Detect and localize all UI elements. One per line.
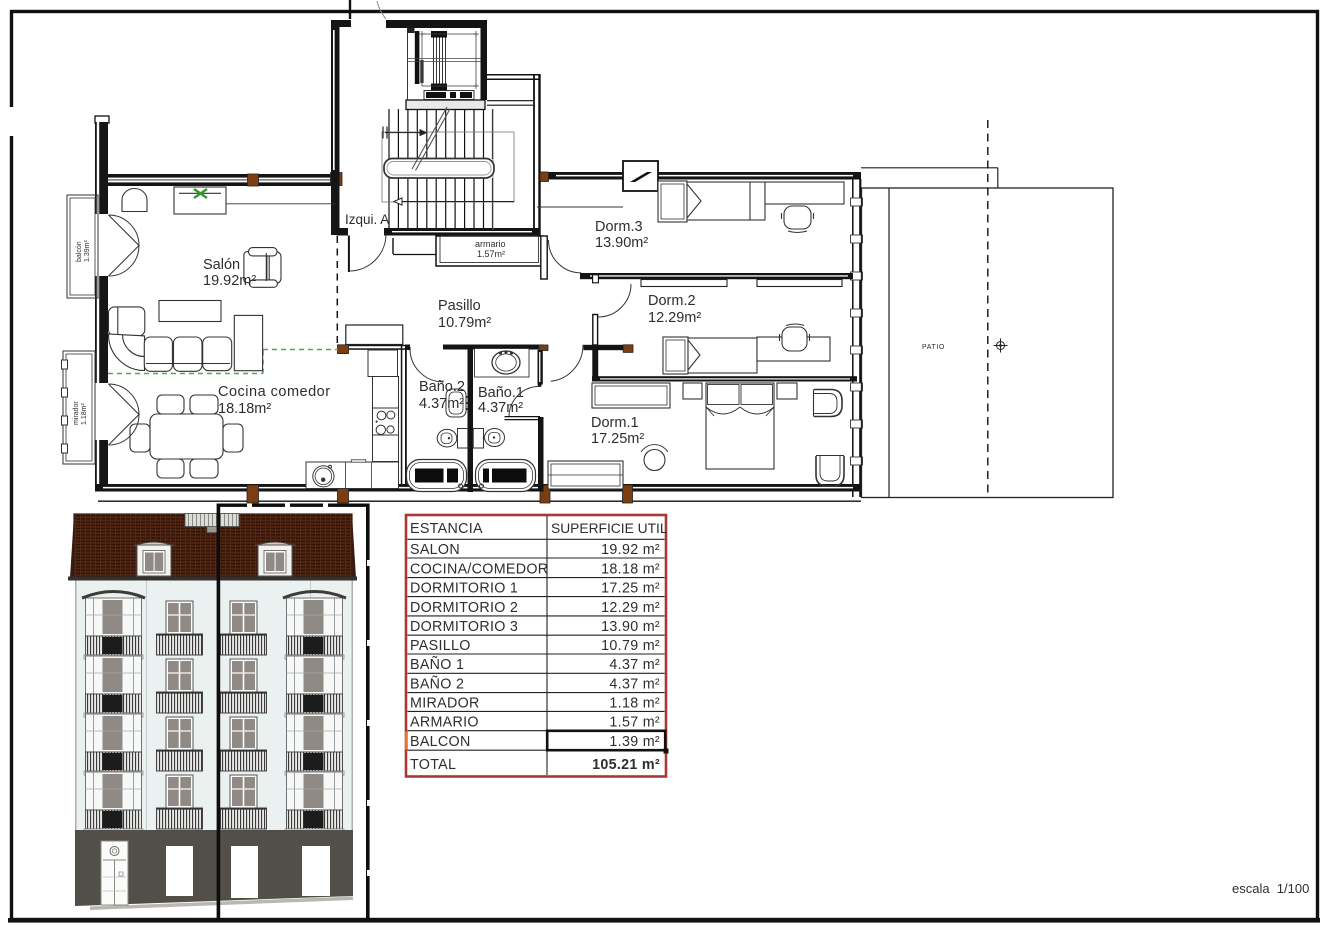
- svg-text:12.29m²: 12.29m²: [648, 310, 701, 326]
- svg-text:4.37m²: 4.37m²: [419, 396, 464, 412]
- svg-text:mirador: mirador: [73, 401, 80, 425]
- svg-text:Dorm.3: Dorm.3: [595, 219, 643, 235]
- svg-text:4.37 m²: 4.37 m²: [609, 677, 660, 693]
- svg-text:ARMARIO: ARMARIO: [410, 715, 479, 731]
- svg-text:17.25 m²: 17.25 m²: [601, 581, 660, 597]
- svg-text:10.79 m²: 10.79 m²: [601, 638, 660, 654]
- svg-text:MIRADOR: MIRADOR: [410, 696, 480, 712]
- svg-text:Izqui. A: Izqui. A: [345, 212, 389, 227]
- svg-text:10.79m²: 10.79m²: [438, 315, 491, 331]
- svg-text:balcón: balcón: [76, 241, 83, 262]
- svg-text:COCINA/COMEDOR: COCINA/COMEDOR: [410, 562, 548, 578]
- svg-text:105.21 m²: 105.21 m²: [592, 757, 660, 773]
- svg-text:17.25m²: 17.25m²: [591, 431, 644, 447]
- svg-text:18.18 m²: 18.18 m²: [601, 562, 660, 578]
- svg-text:ESTANCIA: ESTANCIA: [410, 521, 483, 537]
- svg-text:DORMITORIO 1: DORMITORIO 1: [410, 581, 518, 597]
- svg-text:1.57m²: 1.57m²: [477, 249, 505, 259]
- svg-text:1.39 m²: 1.39 m²: [609, 734, 660, 750]
- svg-text:BAÑO 1: BAÑO 1: [410, 656, 464, 673]
- svg-text:Baño.2: Baño.2: [419, 379, 465, 395]
- svg-text:TOTAL: TOTAL: [410, 757, 456, 773]
- svg-text:Pasillo: Pasillo: [438, 298, 481, 314]
- svg-text:4.37 m²: 4.37 m²: [609, 657, 660, 673]
- svg-text:Dorm.2: Dorm.2: [648, 293, 696, 309]
- svg-text:1.18m²: 1.18m²: [81, 403, 88, 425]
- svg-text:BALCON: BALCON: [410, 734, 471, 750]
- svg-text:1.57 m²: 1.57 m²: [609, 715, 660, 731]
- svg-text:19.92 m²: 19.92 m²: [601, 542, 660, 558]
- svg-text:SUPERFICIE UTIL: SUPERFICIE UTIL: [551, 521, 668, 536]
- svg-text:armario: armario: [475, 239, 506, 249]
- svg-text:DORMITORIO 3: DORMITORIO 3: [410, 619, 518, 635]
- svg-text:1.18 m²: 1.18 m²: [609, 696, 660, 712]
- svg-text:4.37m²: 4.37m²: [478, 400, 523, 416]
- svg-text:escala 1/100: escala 1/100: [1232, 881, 1309, 896]
- svg-text:PASILLO: PASILLO: [410, 638, 471, 654]
- svg-text:12.29 m²: 12.29 m²: [601, 600, 660, 616]
- svg-text:PATIO: PATIO: [922, 344, 945, 351]
- svg-text:19.92m²: 19.92m²: [203, 273, 256, 289]
- svg-text:Salón: Salón: [203, 257, 240, 273]
- svg-text:SALON: SALON: [410, 542, 460, 558]
- svg-text:BAÑO 2: BAÑO 2: [410, 676, 464, 693]
- svg-text:Cocina comedor: Cocina comedor: [218, 384, 331, 400]
- svg-text:13.90m²: 13.90m²: [595, 235, 648, 251]
- svg-text:Dorm.1: Dorm.1: [591, 415, 639, 431]
- svg-text:13.90 m²: 13.90 m²: [601, 619, 660, 635]
- svg-text:1.39m²: 1.39m²: [84, 240, 91, 262]
- svg-text:DORMITORIO 2: DORMITORIO 2: [410, 600, 518, 616]
- svg-text:18.18m²: 18.18m²: [218, 401, 271, 417]
- svg-text:Baño.1: Baño.1: [478, 385, 524, 401]
